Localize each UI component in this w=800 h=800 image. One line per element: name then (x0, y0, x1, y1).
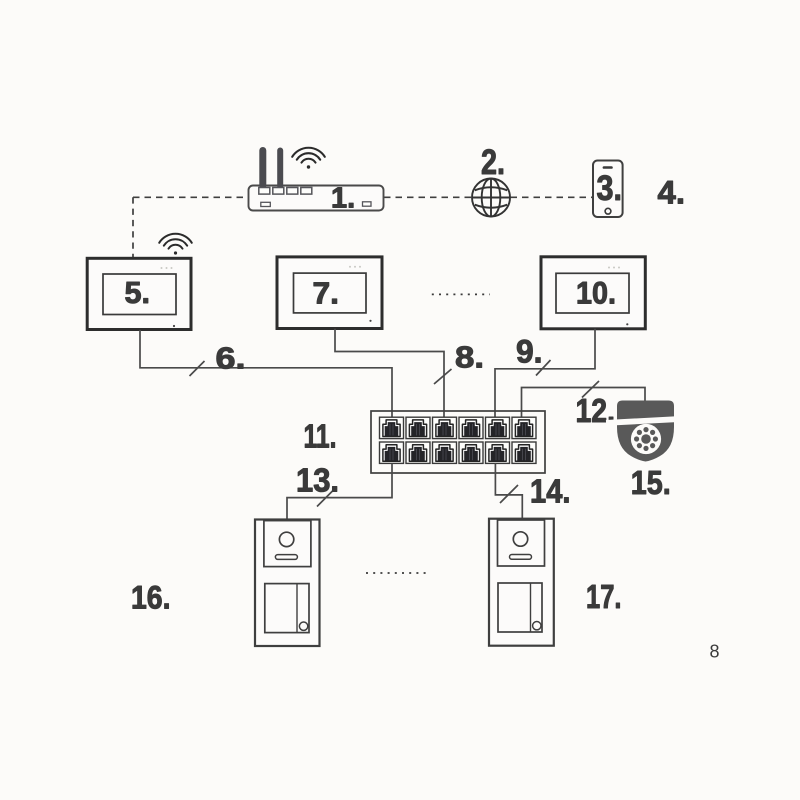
svg-text:6.: 6. (216, 341, 246, 376)
svg-text:17.: 17. (586, 578, 622, 615)
svg-text:4.: 4. (658, 175, 686, 211)
svg-text:10.: 10. (576, 275, 616, 311)
svg-text:1.: 1. (331, 183, 355, 215)
svg-text:11.: 11. (304, 418, 337, 455)
svg-text:3.: 3. (597, 169, 623, 208)
svg-text:7.: 7. (313, 276, 340, 311)
svg-text:8.: 8. (455, 340, 484, 375)
svg-text:9.: 9. (516, 334, 543, 370)
svg-text:14.: 14. (530, 473, 571, 510)
svg-text:13.: 13. (296, 462, 339, 499)
svg-text:8: 8 (710, 642, 720, 662)
svg-text:5.: 5. (125, 275, 151, 310)
svg-text:16.: 16. (131, 580, 171, 616)
svg-text:2.: 2. (481, 143, 505, 182)
svg-text:15.: 15. (631, 464, 671, 501)
